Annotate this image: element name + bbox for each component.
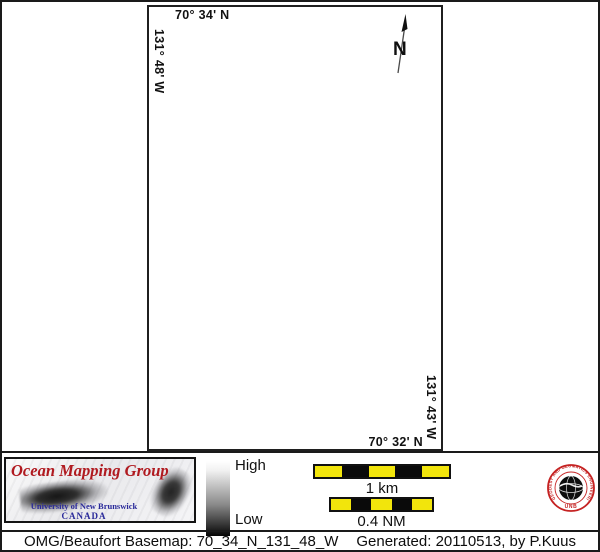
scalebar-segment (351, 499, 371, 510)
omg-logo-country: CANADA (6, 511, 162, 521)
scalebar-segment (371, 499, 391, 510)
scalebar-km (313, 464, 451, 479)
basemap-id-text: OMG/Beaufort Basemap: 70_34_N_131_48_W (24, 533, 338, 550)
scalebar-segment (342, 466, 369, 477)
colorbar-high-label: High (235, 457, 266, 474)
colorbar-low-label: Low (235, 511, 263, 528)
scalebar-nm-label: 0.4 NM (329, 513, 434, 530)
longitude-right-label: 131° 43' W (424, 375, 438, 439)
basemap-figure: 70° 34' N 131° 48' W 131° 43' W 70° 32' … (0, 0, 600, 552)
scalebar-segment (412, 499, 432, 510)
longitude-left-label: 131° 48' W (152, 29, 166, 93)
scalebar-segment (422, 466, 449, 477)
caption-bar: OMG/Beaufort Basemap: 70_34_N_131_48_WGe… (2, 533, 598, 550)
north-letter: N (393, 39, 407, 60)
scalebar-km-label: 1 km (313, 480, 451, 497)
scalebar-segment (315, 466, 342, 477)
scalebar-nm (329, 497, 434, 512)
scalebar-segment (369, 466, 396, 477)
scalebar-segment (392, 499, 412, 510)
latitude-top-label: 70° 34' N (175, 8, 229, 22)
latitude-bottom-label: 70° 32' N (369, 435, 423, 449)
north-arrow-icon: N (389, 13, 417, 77)
unb-geomatics-seal: GEODESY AND GEOMATICS ENGINEERING UNB (546, 463, 596, 513)
panel-divider-top (2, 451, 598, 453)
scalebar-segment (395, 466, 422, 477)
seal-org-text: UNB (565, 504, 578, 510)
depth-colorbar (206, 461, 230, 536)
omg-logo: Ocean Mapping Group University of New Br… (4, 457, 196, 523)
generated-text: Generated: 20110513, by P.Kuus (356, 533, 576, 550)
scalebar-segment (331, 499, 351, 510)
caption-divider (2, 530, 598, 532)
omg-logo-subtitle: University of New Brunswick (6, 501, 162, 511)
omg-logo-title: Ocean Mapping Group (11, 461, 194, 481)
seal-globe-icon (559, 476, 583, 500)
